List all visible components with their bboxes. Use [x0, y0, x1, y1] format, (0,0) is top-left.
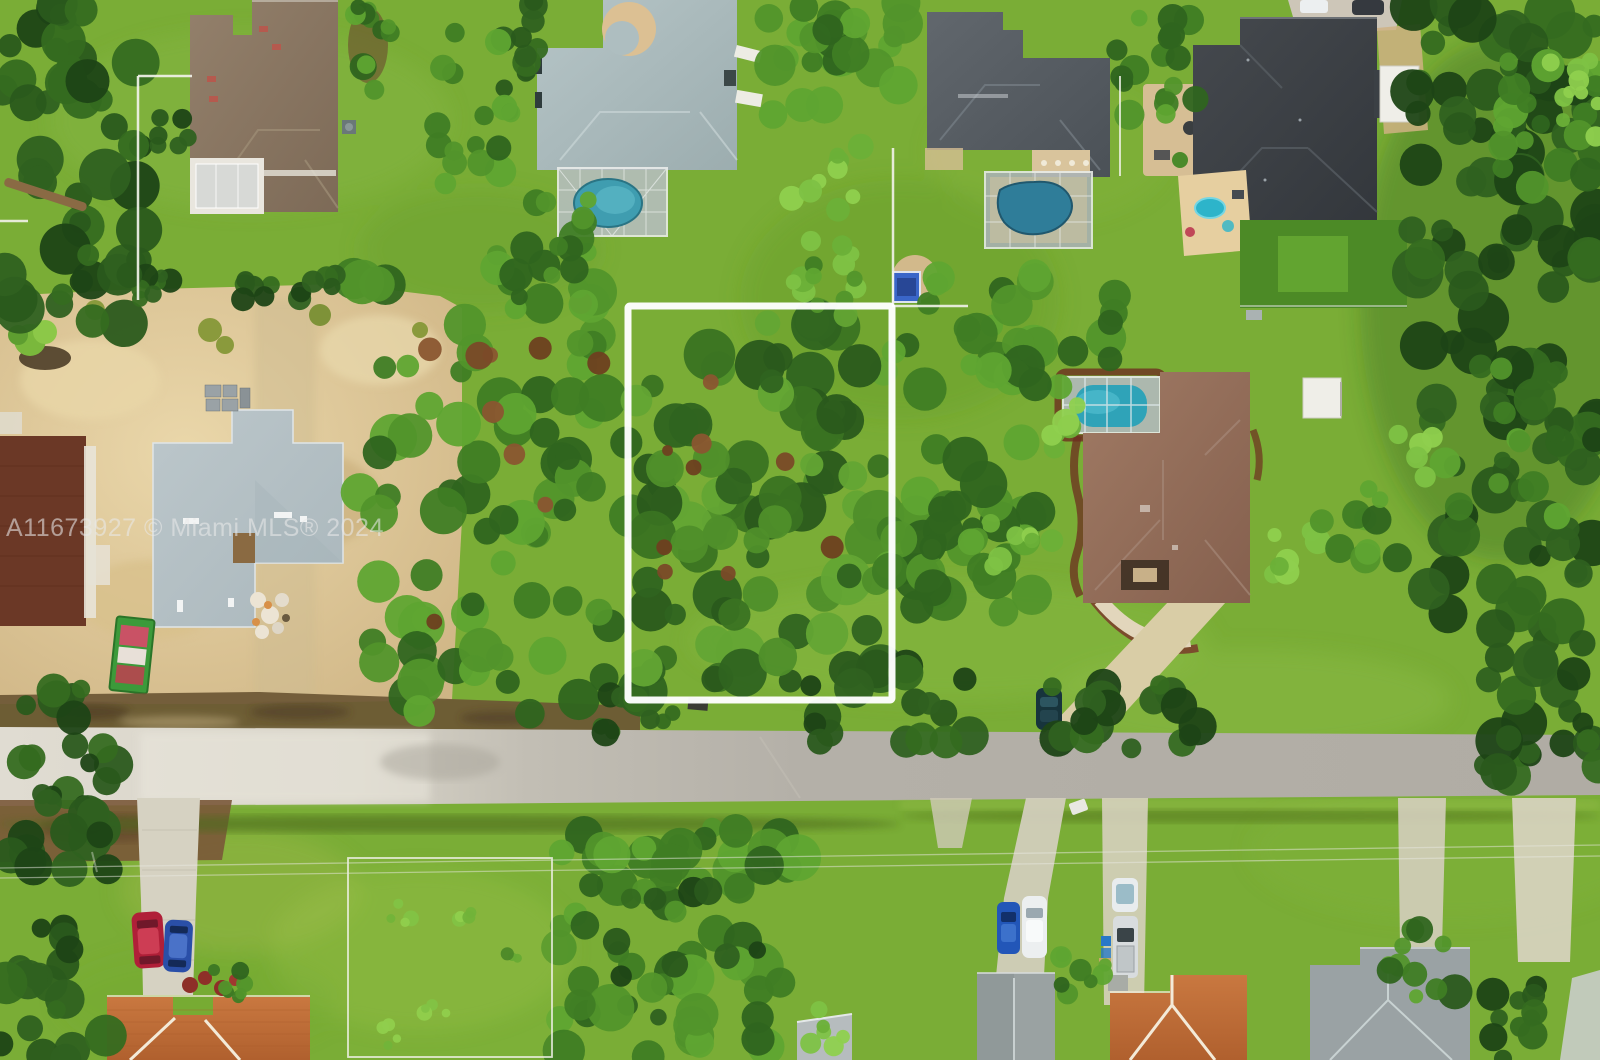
suv-white	[1112, 878, 1138, 912]
car-white	[1022, 896, 1047, 958]
dumpster	[109, 616, 155, 694]
pickup-truck	[1113, 916, 1138, 978]
aerial-photo: A11673927 © Miami MLS® 2024	[0, 0, 1600, 1060]
car-blue	[163, 919, 194, 972]
pool-enclosure-2	[985, 172, 1092, 248]
car-dark-top	[1352, 0, 1384, 15]
driveway-far-right	[1512, 798, 1576, 962]
car-blue-2	[997, 902, 1020, 954]
house-bottom-gray-1	[977, 973, 1055, 1060]
car-white-top	[1300, 0, 1328, 13]
fenced-lawn	[348, 858, 552, 1057]
shed-white-2	[1303, 378, 1341, 418]
pool-2	[998, 182, 1072, 235]
kiddie-pool	[1195, 198, 1225, 218]
car-red	[131, 911, 166, 969]
watermark: A11673927 © Miami MLS® 2024	[6, 514, 384, 543]
